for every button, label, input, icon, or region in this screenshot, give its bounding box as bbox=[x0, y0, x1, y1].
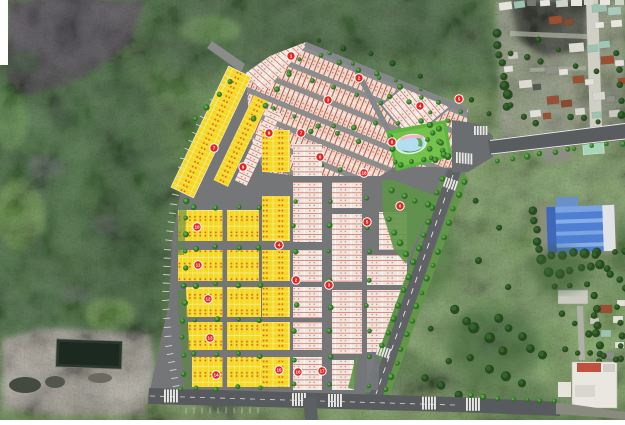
svg-text:10: 10 bbox=[194, 225, 200, 230]
svg-text:4: 4 bbox=[419, 104, 422, 109]
svg-text:1: 1 bbox=[290, 54, 293, 59]
svg-text:2: 2 bbox=[295, 278, 298, 283]
svg-text:6: 6 bbox=[319, 155, 322, 160]
svg-text:7: 7 bbox=[213, 146, 216, 151]
svg-text:12: 12 bbox=[205, 297, 211, 302]
svg-text:3: 3 bbox=[327, 98, 330, 103]
svg-text:11: 11 bbox=[196, 263, 201, 268]
svg-text:18: 18 bbox=[361, 171, 367, 176]
svg-text:9: 9 bbox=[242, 165, 245, 170]
svg-text:6: 6 bbox=[399, 204, 402, 209]
svg-text:5: 5 bbox=[458, 97, 461, 102]
svg-text:7: 7 bbox=[300, 131, 303, 136]
svg-text:4: 4 bbox=[278, 243, 281, 248]
svg-text:8: 8 bbox=[391, 140, 394, 145]
svg-text:13: 13 bbox=[207, 336, 213, 341]
svg-text:14: 14 bbox=[213, 373, 219, 378]
svg-text:3: 3 bbox=[328, 283, 331, 288]
svg-text:5: 5 bbox=[366, 220, 369, 225]
svg-text:16: 16 bbox=[295, 370, 301, 375]
svg-text:15: 15 bbox=[276, 368, 282, 373]
svg-text:2: 2 bbox=[358, 76, 361, 81]
svg-text:9: 9 bbox=[268, 131, 271, 136]
svg-text:17: 17 bbox=[319, 369, 325, 374]
